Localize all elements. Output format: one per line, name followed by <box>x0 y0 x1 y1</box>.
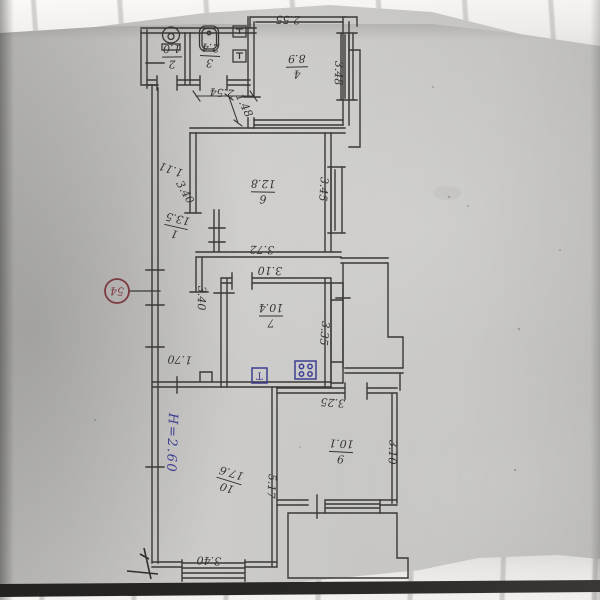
svg-text:1: 1 <box>170 227 180 241</box>
dimension-room10-bottom: 3.40 <box>196 553 221 567</box>
dimension-hall-seg-b: 3.40 <box>173 178 197 206</box>
svg-text:10.1: 10.1 <box>329 436 354 450</box>
dimension-room6-right: 3.45 <box>316 177 331 202</box>
dimension-bath-bottom: 2.54 <box>209 85 235 100</box>
pen-mark <box>127 548 158 579</box>
room-7-label: 7 10.4 <box>259 301 284 330</box>
wall-room4-bottom <box>190 120 345 133</box>
dimension-hall-vert: 3.40 <box>195 286 209 311</box>
room-10-label: 10 17.6 <box>213 463 246 498</box>
wall-outer-top <box>141 17 345 33</box>
svg-text:17.6: 17.6 <box>218 463 245 483</box>
photographed-floor-plan: T 54 H=2.60 2 1.0 3 2.4 4 8.9 6 12.8 <box>0 0 600 600</box>
room-9-label: 9 10.1 <box>328 436 354 466</box>
dimension-room6-bottom: 3.72 <box>249 243 274 257</box>
wall-outer-left <box>141 30 158 563</box>
dimension-room4-right: 3.48 <box>332 61 346 86</box>
room-4-label: 4 8.9 <box>286 52 308 81</box>
svg-text:2.4: 2.4 <box>201 41 220 55</box>
electric-stove-icon <box>295 361 316 379</box>
svg-text:3: 3 <box>206 56 214 69</box>
apartment-number: 54 <box>110 284 124 297</box>
room-6-label: 6 12.8 <box>251 177 276 206</box>
washbasin-icon <box>233 50 246 62</box>
svg-text:4: 4 <box>294 67 302 80</box>
svg-text:2: 2 <box>169 57 177 70</box>
dimension-room10-right: 5.17 <box>264 474 279 499</box>
walls-corridor-right <box>336 258 403 390</box>
svg-text:12.8: 12.8 <box>251 177 276 190</box>
room-2-label: 2 1.0 <box>162 42 182 71</box>
svg-text:7: 7 <box>268 317 275 330</box>
dimension-hall-seg-a: 1.11 <box>157 159 184 179</box>
svg-text:1.0: 1.0 <box>163 42 181 55</box>
room-3-label: 3 2.4 <box>199 40 220 70</box>
svg-text:6: 6 <box>259 192 266 205</box>
wall-ticks-left <box>146 63 164 467</box>
dimension-hall-mid: 3.10 <box>258 264 283 277</box>
floor-plan-drawing: T 54 H=2.60 2 1.0 3 2.4 4 8.9 6 12.8 <box>0 0 600 600</box>
phone-outlet-letter: T <box>256 370 263 381</box>
dimension-top-room4: 2.55 <box>276 13 302 26</box>
balcony-outline <box>288 513 408 578</box>
dimension-hall-lower: 1.70 <box>167 352 192 366</box>
dimension-room7-right: 3.35 <box>317 321 332 347</box>
svg-text:10.4: 10.4 <box>259 301 284 314</box>
apartment-number-badge: 54 <box>105 279 129 303</box>
window-room9 <box>325 500 380 513</box>
dimension-room9-top: 3.25 <box>320 395 345 410</box>
ceiling-height-note: H=2.60 <box>163 412 180 474</box>
room-1-label: 1 13.5 <box>161 210 191 243</box>
svg-text:8.9: 8.9 <box>288 52 306 65</box>
dimension-room9-right: 3.10 <box>385 440 399 465</box>
svg-text:9: 9 <box>337 452 345 465</box>
